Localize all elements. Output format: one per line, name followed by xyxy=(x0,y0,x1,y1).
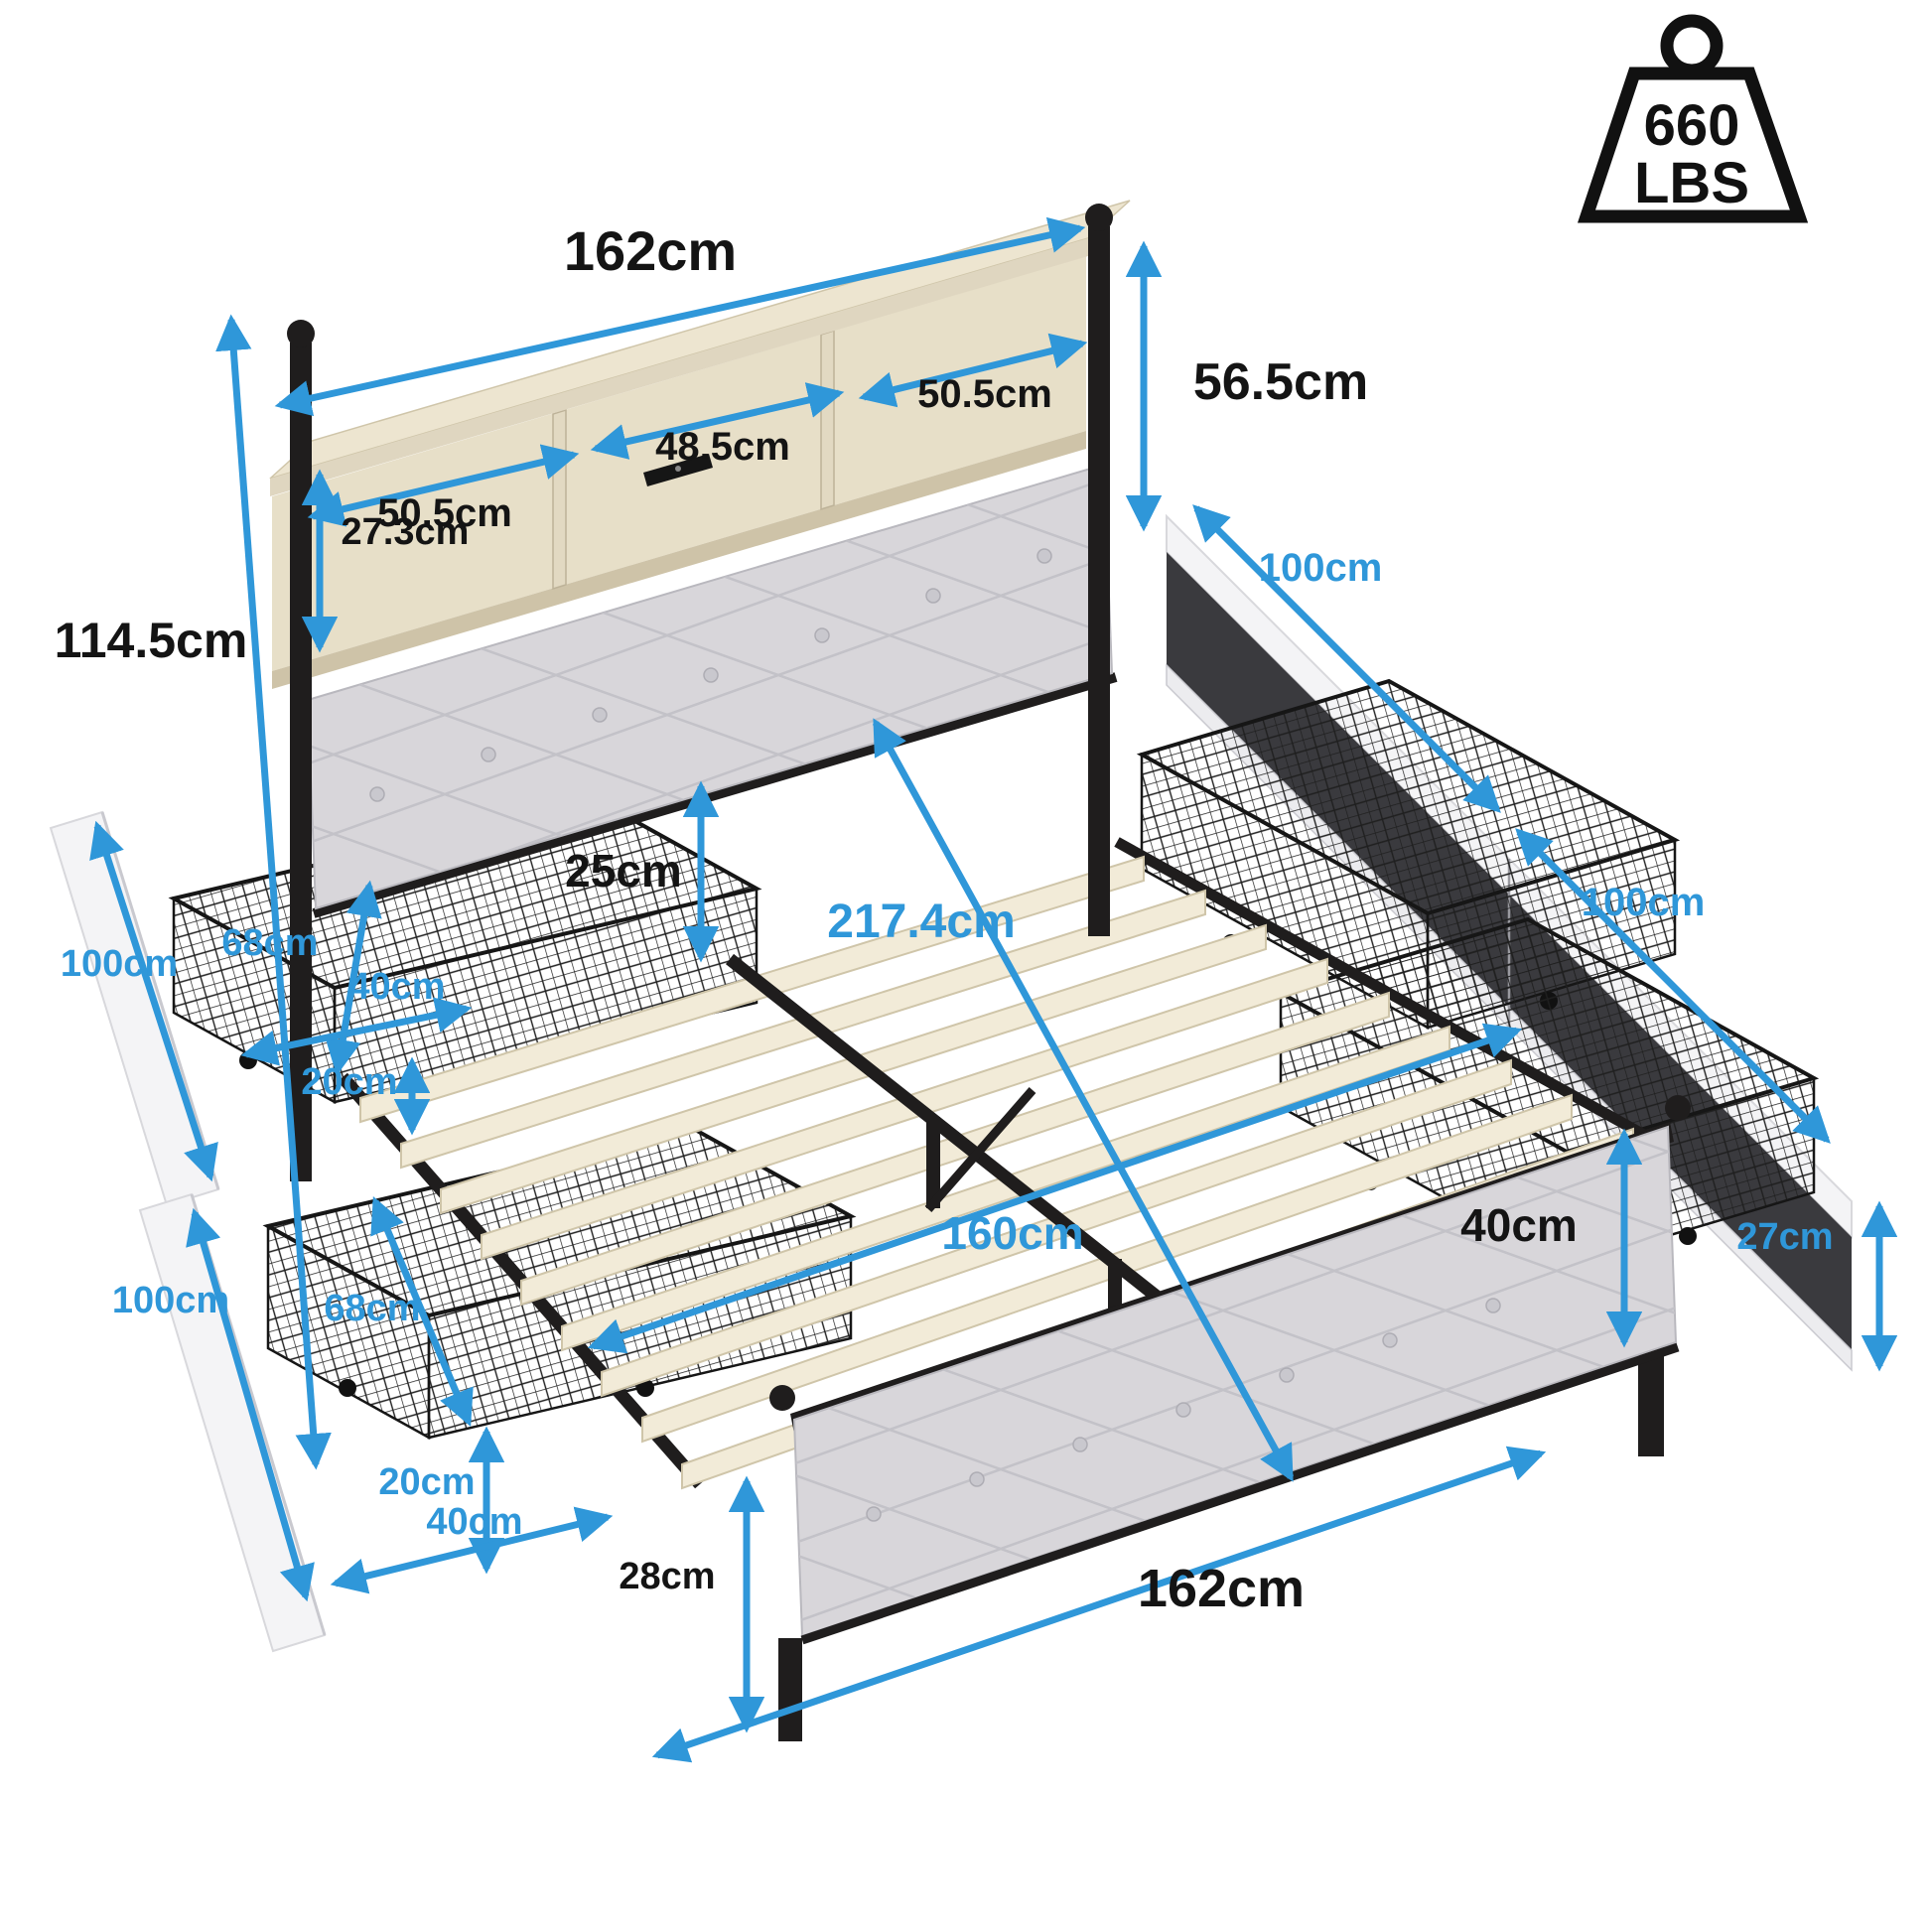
tuft-button xyxy=(926,589,940,603)
dim-label-ll-height: 20cm xyxy=(378,1461,475,1503)
dim-label-ul-height: 20cm xyxy=(301,1061,397,1103)
weight-capacity-value: 660 xyxy=(1644,93,1740,158)
tuft-button xyxy=(593,708,607,722)
dim-label-shelf-right: 50.5cm xyxy=(917,372,1052,416)
dim-label-ll-width: 40cm xyxy=(426,1501,522,1543)
tuft-button xyxy=(815,628,829,642)
dim-label-ul-width: 40cm xyxy=(348,966,445,1008)
post-finial xyxy=(1085,204,1113,231)
dim-label-ll-panel: 100cm xyxy=(112,1280,229,1321)
shelf-divider xyxy=(553,410,566,589)
dim-label-ul-panel: 100cm xyxy=(61,943,178,985)
tuft-button xyxy=(1383,1333,1397,1347)
dim-label-headboard-width: 162cm xyxy=(564,219,737,282)
dim-label-bed-diagonal: 217.4cm xyxy=(827,896,1016,948)
tuft-button xyxy=(970,1472,984,1486)
dim-label-right-panel-height: 27cm xyxy=(1736,1216,1833,1258)
dim-label-right-panel-2: 100cm xyxy=(1582,881,1706,924)
shelf-divider xyxy=(821,331,834,509)
post-finial xyxy=(287,320,315,347)
dim-label-headboard-height: 114.5cm xyxy=(55,613,248,668)
dim-label-shelf-inner-height: 27.3cm xyxy=(342,511,470,553)
dim-label-right-panel-1: 100cm xyxy=(1259,546,1383,590)
dim-label-shelf-total-height: 56.5cm xyxy=(1193,353,1368,411)
dim-label-footboard-height: 40cm xyxy=(1460,1199,1578,1251)
tuft-button xyxy=(1280,1368,1294,1382)
dim-label-footboard-width: 162cm xyxy=(1138,1559,1305,1618)
tuft-button xyxy=(1073,1438,1087,1451)
tuft-button xyxy=(1176,1403,1190,1417)
caster-wheel xyxy=(339,1379,356,1397)
tuft-button xyxy=(704,668,718,682)
tuft-button xyxy=(867,1507,881,1521)
bed-dimension-illustration: 162cm 50.5cm 48.5cm 50.5cm 27.3cm 56.5cm… xyxy=(0,0,1932,1932)
dim-label-footboard-leg: 28cm xyxy=(619,1556,715,1597)
footboard-leg-left xyxy=(778,1638,802,1741)
dim-label-ul-depth: 68cm xyxy=(221,922,318,964)
post-finial xyxy=(1665,1095,1691,1121)
caster-wheel xyxy=(1679,1227,1697,1245)
tuft-button xyxy=(482,748,495,761)
dim-label-shelf-mid: 48.5cm xyxy=(655,425,790,469)
footboard xyxy=(769,1095,1691,1741)
post-finial xyxy=(769,1385,795,1411)
weight-capacity-badge: 660 LBS xyxy=(1587,21,1799,216)
dim-label-gap: 25cm xyxy=(565,845,682,897)
tuft-button xyxy=(1037,549,1051,563)
weight-icon-ring xyxy=(1667,21,1717,70)
dim-label-ll-depth: 68cm xyxy=(324,1288,420,1329)
product-dimension-diagram: 162cm 50.5cm 48.5cm 50.5cm 27.3cm 56.5cm… xyxy=(0,0,1932,1932)
headboard-post-right xyxy=(1088,226,1110,936)
headboard-post-left xyxy=(290,343,312,1181)
dim-label-slat-width: 160cm xyxy=(941,1207,1083,1259)
tuft-button xyxy=(1486,1299,1500,1312)
tuft-button xyxy=(370,787,384,801)
weight-capacity-unit: LBS xyxy=(1634,151,1749,215)
